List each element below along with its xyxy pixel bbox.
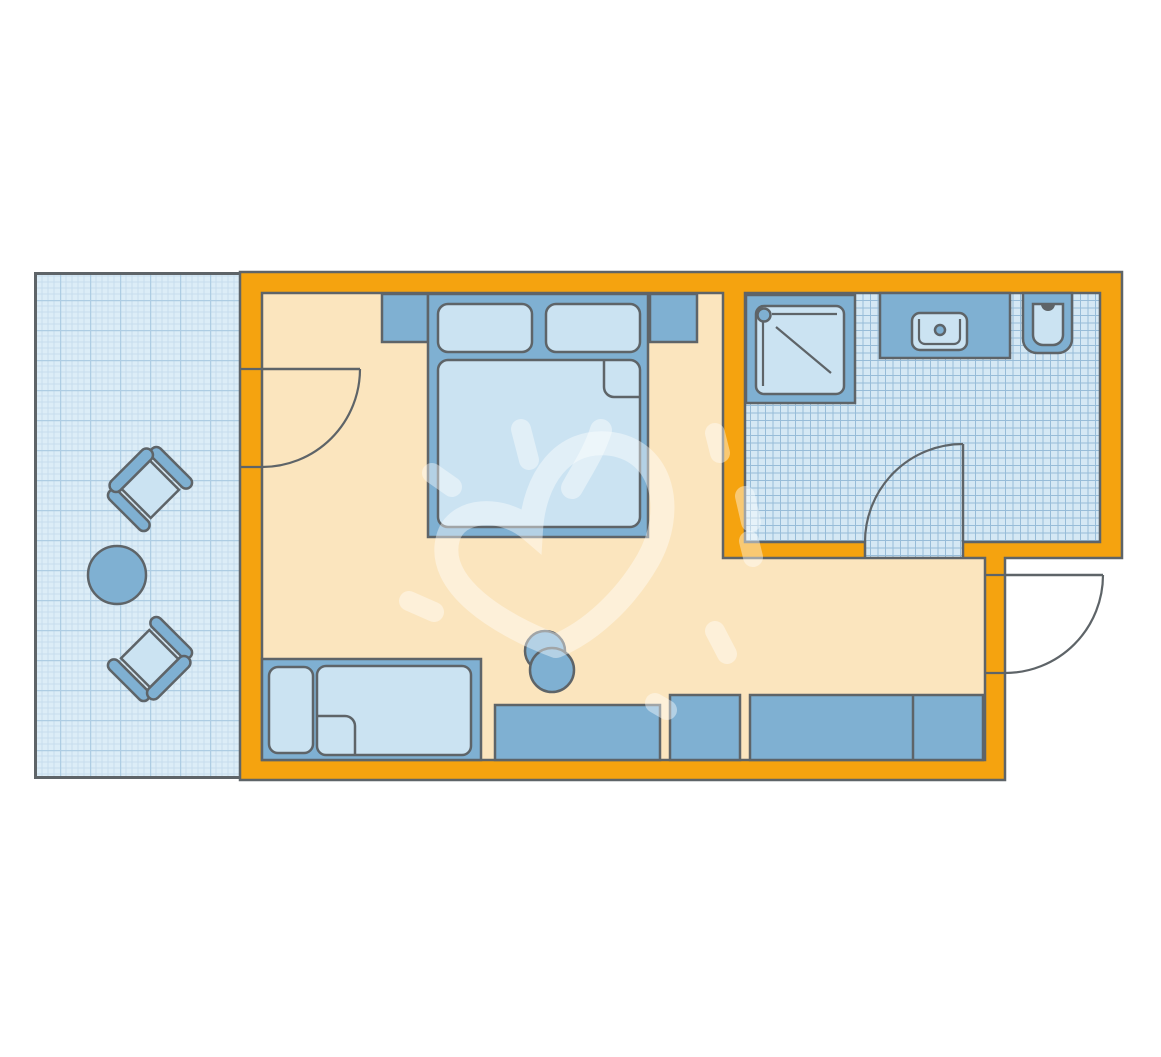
wardrobe-icon [750, 695, 983, 760]
toilet-icon [1023, 293, 1072, 353]
sink-icon [880, 293, 1010, 358]
bed-pillow [269, 667, 313, 753]
floor-plan [0, 0, 1161, 1057]
shower-head [758, 309, 771, 322]
nightstand-left-icon [382, 294, 428, 342]
shower-icon [746, 295, 855, 403]
bathroom-doorway-floor [865, 540, 963, 559]
bed-mattress [317, 666, 471, 755]
bed-pillow [546, 304, 640, 352]
single-bed-icon [262, 659, 481, 760]
wardrobe-body [750, 695, 983, 760]
desk-icon [495, 705, 660, 760]
balcony-table-icon [88, 546, 146, 604]
bed-pillow [438, 304, 532, 352]
sink-drain [935, 325, 945, 335]
nightstand-right-icon [650, 294, 697, 342]
balcony [36, 274, 241, 778]
cabinet-icon [670, 695, 740, 760]
floor-plan-canvas [0, 0, 1161, 1057]
